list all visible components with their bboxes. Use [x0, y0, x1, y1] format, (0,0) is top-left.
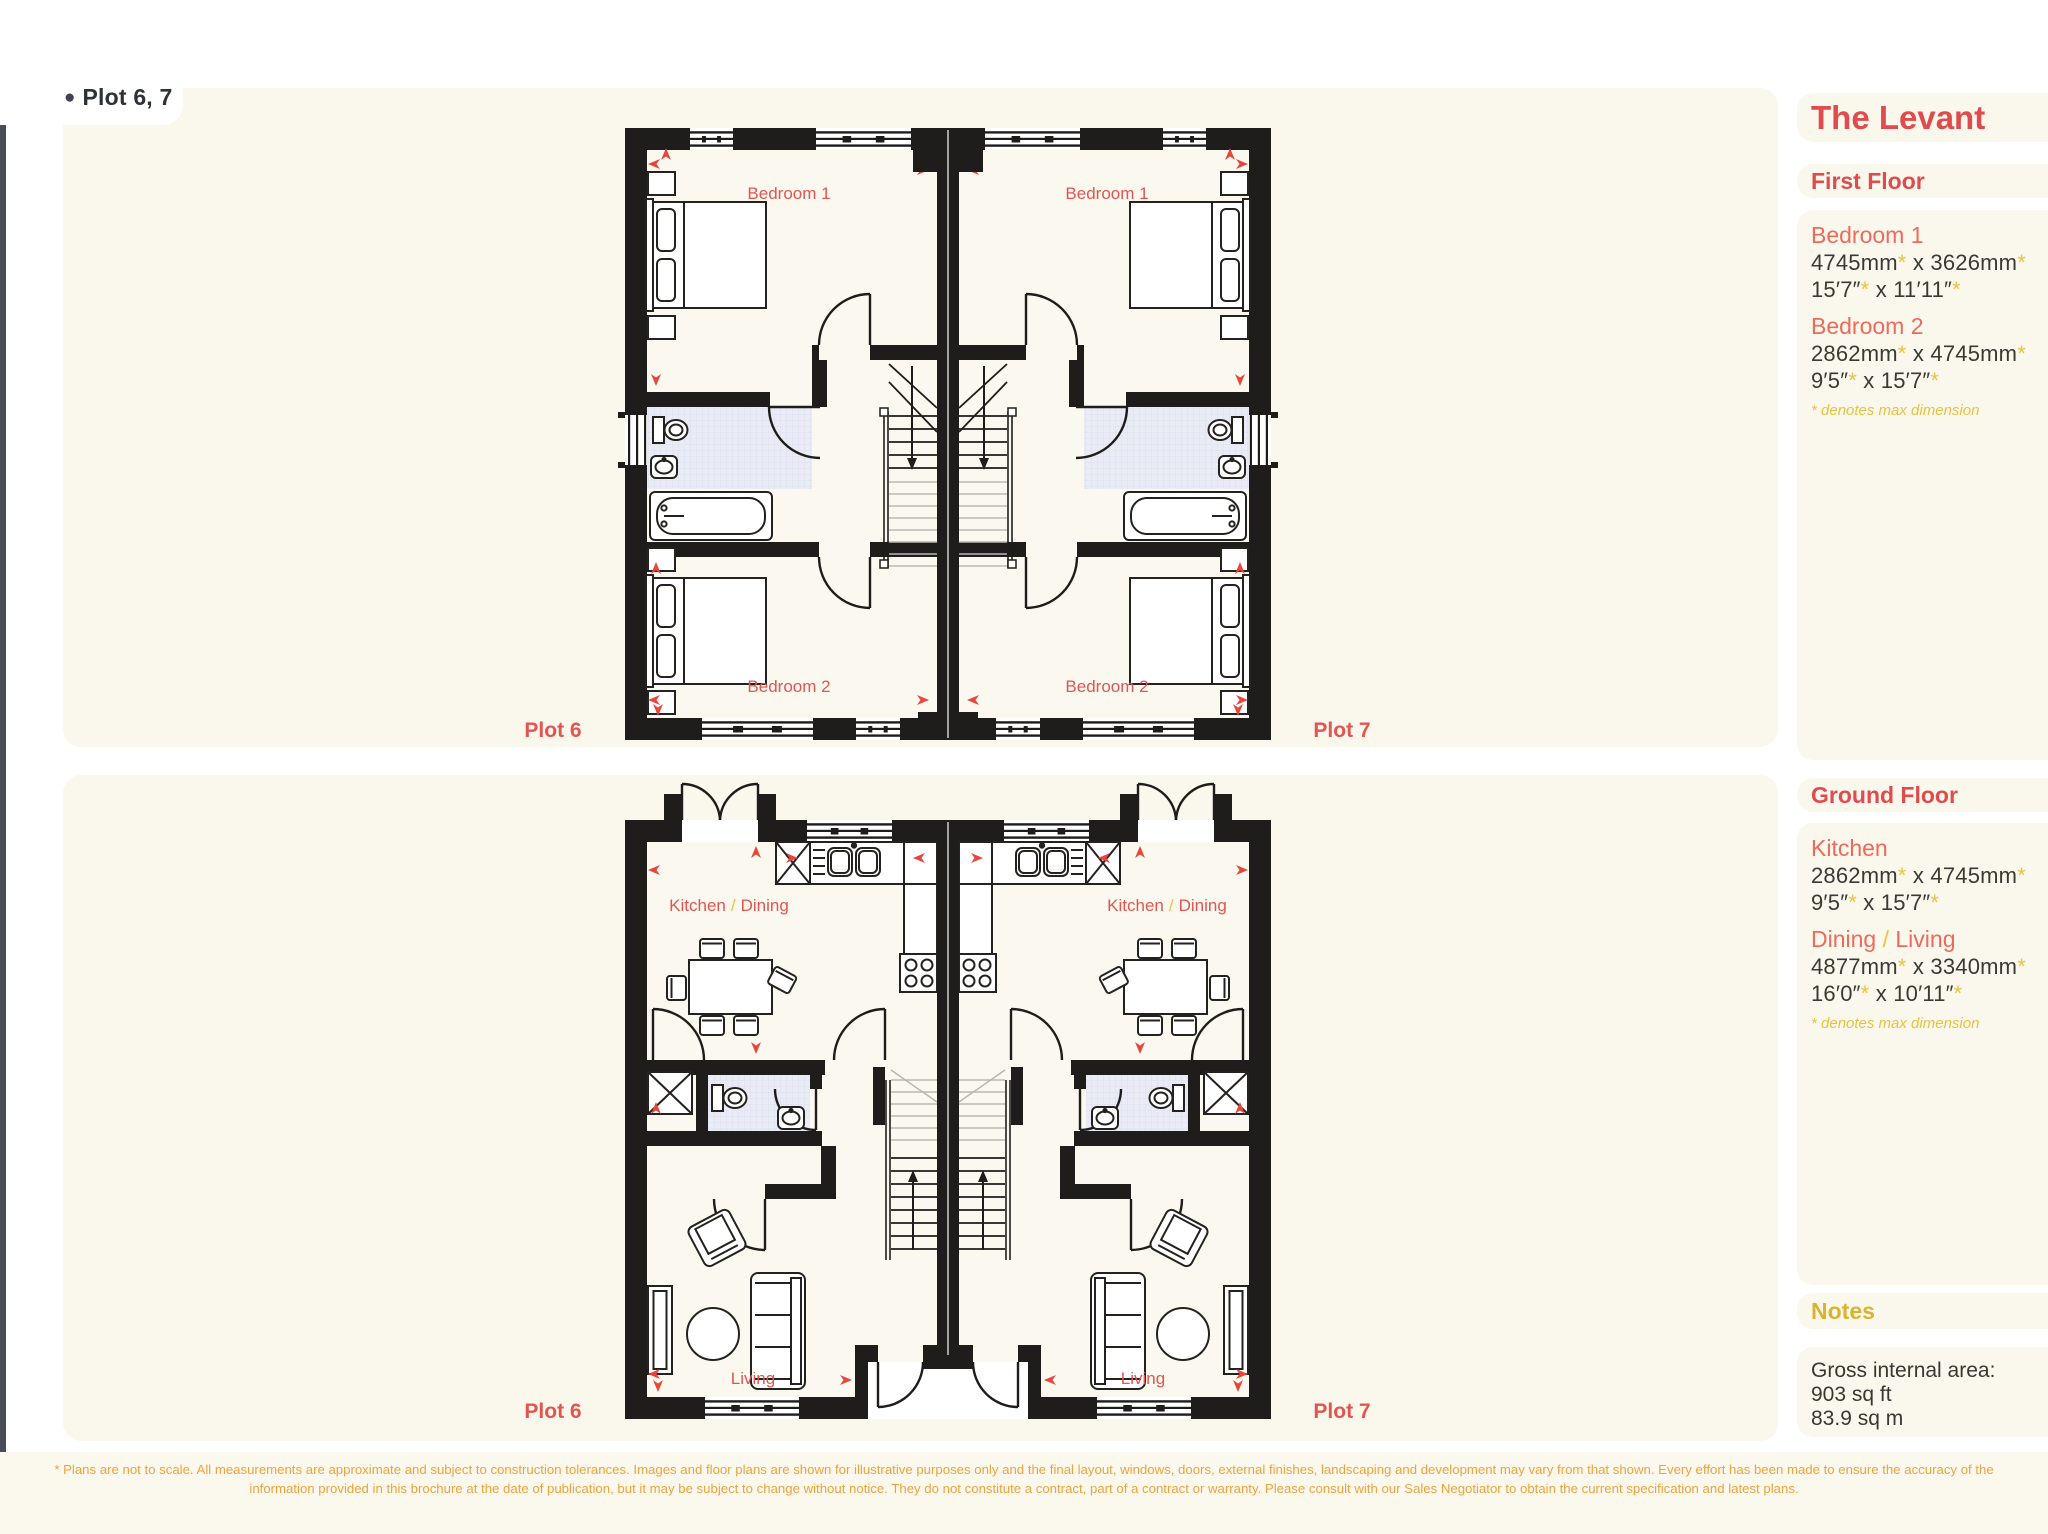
room-name: Bedroom 1	[1811, 222, 2048, 249]
gross-area-sqm: 83.9 sq m	[1811, 1407, 2048, 1431]
nightstand-icon	[648, 548, 675, 571]
ground-floor-plan: Kitchen/Dining Kitchen/Dining Living Liv…	[480, 780, 1380, 1460]
patio-doors	[682, 784, 758, 820]
sidebar-notes-heading-panel: Notes	[1797, 1293, 2048, 1329]
disclaimer-line-1: * Plans are not to scale. All measuremen…	[0, 1461, 2048, 1480]
side-window	[618, 412, 647, 468]
nightstand-icon	[648, 691, 675, 714]
max-dimension-footnote: * denotes max dimension	[1811, 1015, 2048, 1032]
room-label-bedroom2: Bedroom 2	[747, 677, 830, 696]
sidebar-first-floor-dims-panel: Bedroom 1 4745mm* x 3626mm* 15′7″* x 11′…	[1797, 210, 2048, 760]
room-label-bedroom1: Bedroom 1	[747, 184, 830, 203]
round-table-icon	[687, 1308, 739, 1360]
ground-floor-right-unit	[948, 784, 1271, 1419]
sidebar-gross-area-panel: Gross internal area: 903 sq ft 83.9 sq m	[1797, 1347, 2048, 1437]
plot-6-label: Plot 6	[524, 1400, 581, 1423]
room-dim-metric: 2862mm* x 4745mm*	[1811, 862, 2048, 889]
room-dim-metric: 4745mm* x 3626mm*	[1811, 249, 2048, 276]
first-floor-left-unit	[618, 128, 948, 740]
room-name: Bedroom 2	[1811, 313, 2048, 340]
first-floor-heading: First Floor	[1811, 168, 1925, 195]
ground-floor-left-unit	[625, 784, 948, 1419]
sidebar-ground-floor-heading-panel: Ground Floor	[1797, 778, 2048, 812]
bullet-icon: ●	[64, 88, 75, 107]
room-dim-imperial: 16′0″* x 10′11″*	[1811, 980, 2048, 1007]
plot-7-label: Plot 7	[1313, 1400, 1370, 1423]
nightstand-icon	[648, 172, 675, 195]
plot-tag-label: Plot 6, 7	[82, 84, 172, 111]
disclaimer-line-2: information provided in this brochure at…	[0, 1480, 2048, 1499]
room-name: Dining / Living	[1811, 926, 2048, 953]
toilet-icon	[653, 417, 688, 443]
room-name: Kitchen	[1811, 835, 2048, 862]
max-dimension-footnote: * denotes max dimension	[1811, 402, 2048, 419]
room-label-living: Living	[731, 1369, 775, 1388]
first-floor-right-unit	[948, 128, 1278, 740]
patio-opening	[682, 820, 758, 842]
room-label-bedroom2: Bedroom 2	[1065, 677, 1148, 696]
room-dim-metric: 4877mm* x 3340mm*	[1811, 953, 2048, 980]
page-edge-strip	[0, 0, 6, 1534]
basin-icon	[778, 1107, 804, 1129]
hob-icon	[900, 954, 937, 992]
room-dim-imperial: 9′5″* x 15′7″*	[1811, 367, 2048, 394]
plot-tag: ● Plot 6, 7	[64, 84, 172, 111]
house-type-title: The Levant	[1811, 99, 1985, 137]
sidebar-title-panel: The Levant	[1797, 93, 2048, 142]
nightstand-icon	[648, 316, 675, 339]
bed-icon	[646, 199, 766, 311]
ground-floor-heading: Ground Floor	[1811, 782, 1958, 809]
sidebar-first-floor-heading-panel: First Floor	[1797, 164, 2048, 198]
toilet-icon	[712, 1085, 747, 1111]
room-label-bedroom1: Bedroom 1	[1065, 184, 1148, 203]
sidebar-ground-floor-dims-panel: Kitchen 2862mm* x 4745mm* 9′5″* x 15′7″*…	[1797, 823, 2048, 1285]
bed-icon	[646, 575, 766, 687]
gross-area-sqft: 903 sq ft	[1811, 1383, 2048, 1407]
plot-7-label: Plot 7	[1313, 719, 1370, 742]
notes-heading: Notes	[1811, 1298, 1875, 1325]
room-dim-imperial: 15′7″* x 11′11″*	[1811, 276, 2048, 303]
bath-icon	[650, 492, 772, 540]
disclaimer: * Plans are not to scale. All measuremen…	[0, 1452, 2048, 1534]
first-floor-plan: Bedroom 1 Bedroom 1 Bedroom 2 Bedroom 2 …	[480, 120, 1380, 770]
room-dim-metric: 2862mm* x 4745mm*	[1811, 340, 2048, 367]
gross-area-label: Gross internal area:	[1811, 1359, 2048, 1383]
room-dim-imperial: 9′5″* x 15′7″*	[1811, 889, 2048, 916]
basin-icon	[651, 456, 677, 478]
brochure-page: ● Plot 6, 7 The Levant First Floor Bedro…	[0, 0, 2048, 1534]
dining-table-icon	[689, 960, 772, 1014]
plot-6-label: Plot 6	[524, 719, 581, 742]
radiator-icon	[648, 1286, 672, 1374]
room-label-living: Living	[1121, 1369, 1165, 1388]
